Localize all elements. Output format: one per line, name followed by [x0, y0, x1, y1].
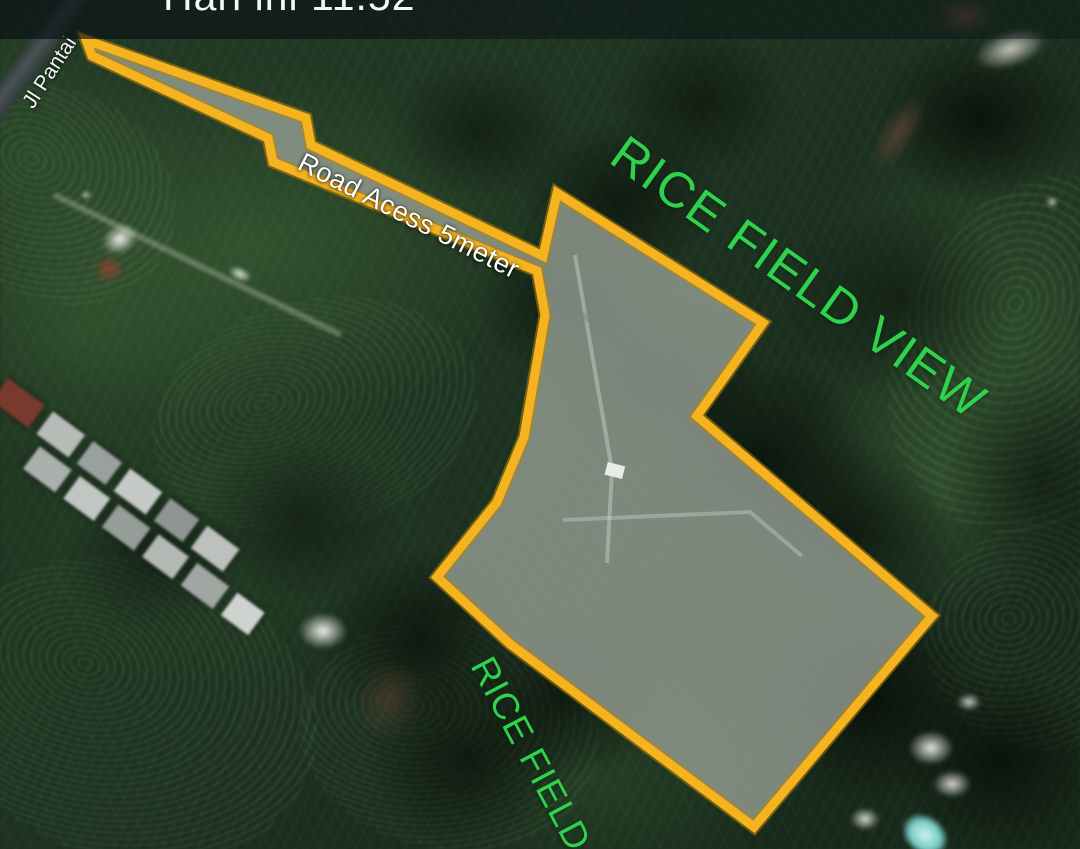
timestamp-text: Hari ini 11.52: [163, 0, 416, 20]
status-band: Hari ini 11.52: [0, 0, 1080, 39]
map-viewport[interactable]: Jl Pantai Road Acess 5meter RICE FIELD V…: [0, 0, 1080, 849]
parcel-overlay-svg: [0, 0, 1080, 849]
